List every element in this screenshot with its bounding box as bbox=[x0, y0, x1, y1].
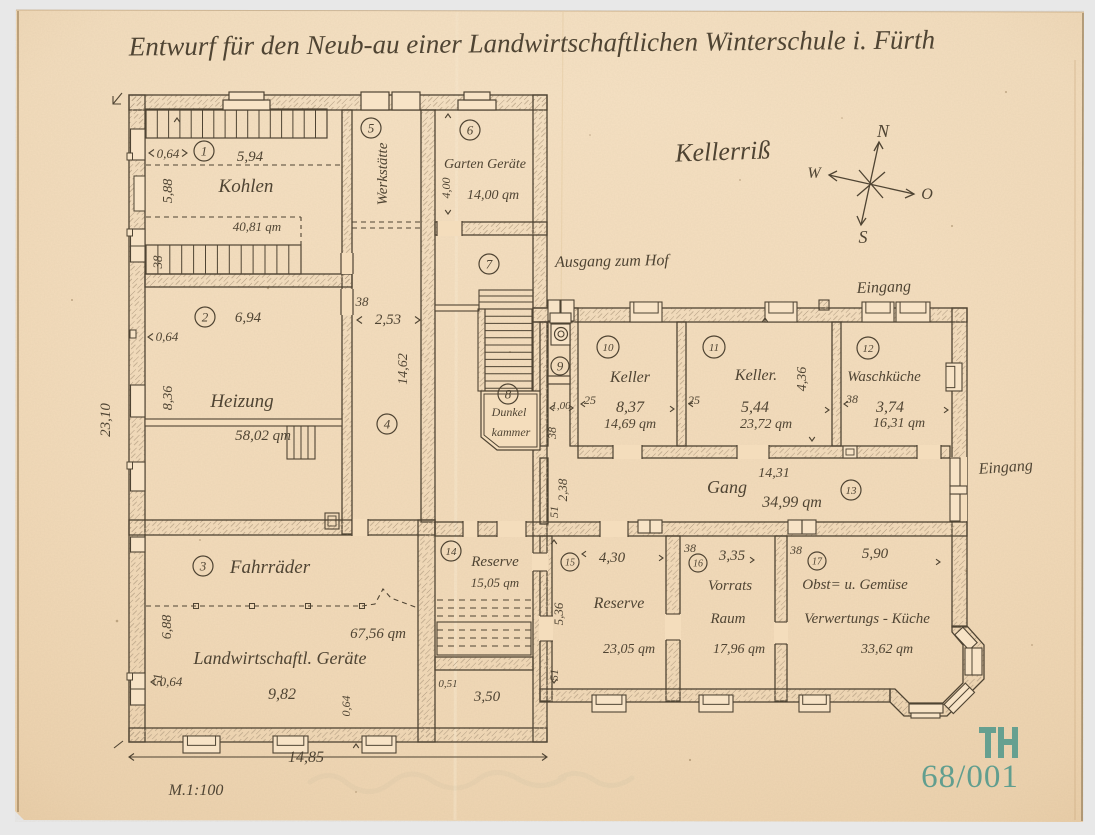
svg-text:5,44: 5,44 bbox=[741, 399, 769, 416]
svg-text:Vorrats: Vorrats bbox=[708, 578, 752, 594]
svg-text:23,05 qm: 23,05 qm bbox=[603, 642, 655, 657]
svg-text:38: 38 bbox=[789, 543, 802, 557]
svg-text:38: 38 bbox=[683, 541, 696, 555]
svg-text:51: 51 bbox=[547, 506, 561, 518]
svg-text:17,96 qm: 17,96 qm bbox=[713, 642, 765, 657]
svg-text:5,36: 5,36 bbox=[551, 602, 566, 625]
svg-text:Werkstätte: Werkstätte bbox=[375, 142, 391, 205]
svg-text:4,36: 4,36 bbox=[795, 367, 810, 392]
svg-text:38: 38 bbox=[355, 294, 370, 309]
svg-text:3: 3 bbox=[199, 559, 207, 574]
svg-text:23,10: 23,10 bbox=[98, 403, 114, 437]
svg-text:40,81 qm: 40,81 qm bbox=[233, 219, 281, 234]
svg-text:Verwertungs - Küche: Verwertungs - Küche bbox=[804, 611, 930, 627]
svg-text:4: 4 bbox=[384, 417, 391, 432]
svg-text:25: 25 bbox=[584, 393, 596, 407]
svg-text:67,56 qm: 67,56 qm bbox=[350, 626, 406, 642]
svg-text:3,35: 3,35 bbox=[718, 548, 746, 564]
svg-text:Kohlen: Kohlen bbox=[218, 176, 274, 197]
svg-text:14,69 qm: 14,69 qm bbox=[604, 417, 656, 432]
svg-text:12: 12 bbox=[863, 343, 875, 355]
svg-text:7: 7 bbox=[486, 257, 493, 272]
svg-text:14,00 qm: 14,00 qm bbox=[467, 188, 519, 203]
svg-text:5,94: 5,94 bbox=[237, 149, 264, 165]
svg-text:2,38: 2,38 bbox=[555, 478, 570, 501]
svg-text:14: 14 bbox=[446, 546, 458, 558]
svg-text:14,31: 14,31 bbox=[758, 466, 790, 481]
svg-text:9,82: 9,82 bbox=[268, 686, 296, 703]
svg-text:0,64: 0,64 bbox=[339, 696, 353, 717]
svg-text:15: 15 bbox=[565, 558, 575, 569]
svg-text:4,00: 4,00 bbox=[439, 178, 453, 199]
svg-text:Kellerriß: Kellerriß bbox=[674, 135, 771, 167]
svg-text:8,36: 8,36 bbox=[161, 386, 176, 411]
svg-text:Gang: Gang bbox=[707, 477, 747, 497]
svg-text:kammer: kammer bbox=[492, 425, 531, 439]
svg-text:Obst= u. Gemüse: Obst= u. Gemüse bbox=[802, 577, 908, 593]
svg-text:38: 38 bbox=[545, 427, 559, 440]
svg-text:5,90: 5,90 bbox=[862, 546, 889, 562]
svg-text:Heizung: Heizung bbox=[209, 391, 273, 412]
svg-text:2,53: 2,53 bbox=[375, 312, 401, 328]
svg-text:Raum: Raum bbox=[710, 611, 746, 627]
svg-text:Garten Geräte: Garten Geräte bbox=[444, 157, 526, 172]
svg-text:15,05 qm: 15,05 qm bbox=[471, 575, 519, 590]
svg-text:Eingang: Eingang bbox=[855, 278, 911, 297]
svg-text:38: 38 bbox=[150, 255, 165, 270]
svg-text:8,37: 8,37 bbox=[616, 399, 645, 416]
svg-text:0,64: 0,64 bbox=[160, 674, 183, 689]
svg-text:N: N bbox=[876, 121, 890, 141]
svg-text:3,50: 3,50 bbox=[473, 689, 501, 705]
svg-text:Keller.: Keller. bbox=[734, 367, 777, 384]
svg-text:3,74: 3,74 bbox=[875, 399, 904, 416]
svg-text:5,88: 5,88 bbox=[161, 179, 176, 204]
svg-text:8: 8 bbox=[505, 387, 512, 402]
svg-text:Landwirtschaftl. Geräte: Landwirtschaftl. Geräte bbox=[192, 648, 366, 668]
svg-text:16: 16 bbox=[693, 559, 703, 570]
svg-text:Ausgang zum Hof: Ausgang zum Hof bbox=[554, 252, 672, 271]
svg-text:1,00: 1,00 bbox=[551, 400, 571, 412]
svg-text:23,72 qm: 23,72 qm bbox=[740, 417, 792, 432]
svg-text:17: 17 bbox=[812, 557, 823, 568]
svg-text:34,99 qm: 34,99 qm bbox=[761, 494, 822, 511]
svg-text:0,51: 0,51 bbox=[438, 678, 457, 690]
svg-text:9: 9 bbox=[557, 359, 564, 374]
svg-text:51: 51 bbox=[547, 669, 561, 681]
svg-text:Waschküche: Waschküche bbox=[847, 369, 921, 385]
svg-text:10: 10 bbox=[603, 342, 615, 354]
svg-text:Reserve: Reserve bbox=[470, 554, 519, 570]
svg-text:1: 1 bbox=[201, 144, 208, 159]
svg-text:2: 2 bbox=[202, 310, 209, 325]
svg-text:6: 6 bbox=[467, 123, 474, 138]
svg-text:Dunkel: Dunkel bbox=[491, 405, 527, 419]
svg-text:5: 5 bbox=[368, 121, 375, 136]
svg-text:O: O bbox=[921, 186, 933, 203]
svg-text:16,31 qm: 16,31 qm bbox=[873, 416, 925, 431]
svg-text:Fahrräder: Fahrräder bbox=[229, 557, 311, 578]
svg-text:6,88: 6,88 bbox=[160, 615, 175, 640]
svg-text:13: 13 bbox=[846, 485, 858, 497]
svg-text:33,62 qm: 33,62 qm bbox=[860, 642, 913, 657]
svg-text:W: W bbox=[807, 165, 822, 182]
svg-text:58,02 qm: 58,02 qm bbox=[235, 428, 291, 444]
svg-text:S: S bbox=[859, 227, 868, 247]
svg-text:0,64: 0,64 bbox=[156, 329, 179, 344]
svg-text:Reserve: Reserve bbox=[593, 595, 645, 612]
svg-text:4,30: 4,30 bbox=[599, 550, 626, 566]
svg-text:M.1:100: M.1:100 bbox=[168, 782, 224, 799]
svg-text:6,94: 6,94 bbox=[235, 310, 262, 326]
svg-text:14,85: 14,85 bbox=[288, 749, 324, 766]
svg-text:14,62: 14,62 bbox=[396, 353, 411, 385]
svg-text:0,64: 0,64 bbox=[157, 146, 180, 161]
svg-text:Keller: Keller bbox=[609, 369, 651, 386]
svg-text:68/001: 68/001 bbox=[921, 759, 1019, 795]
svg-text:38: 38 bbox=[845, 392, 858, 406]
svg-text:11: 11 bbox=[709, 342, 719, 354]
